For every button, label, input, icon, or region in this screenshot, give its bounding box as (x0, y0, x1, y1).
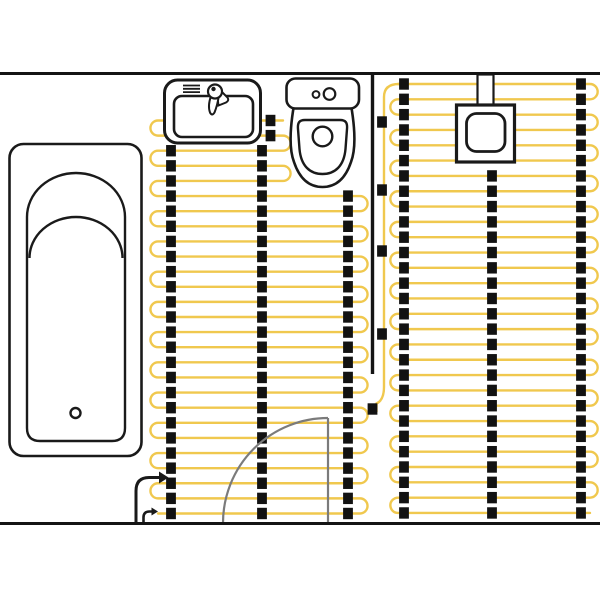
right-heating-mat-fixing-strip-segment (399, 232, 409, 243)
left-heating-mat-fixing-strip-segment (343, 462, 353, 473)
left-heating-mat-fixing-strip-segment (166, 236, 176, 247)
left-heating-mat-fixing-strip-segment (257, 266, 267, 277)
left-heating-mat-fixing-strip-segment (166, 342, 176, 353)
left-heating-mat-fixing-strip-segment (166, 447, 176, 458)
left-heating-mat-fixing-strip-segment (166, 160, 176, 171)
right-heating-mat-fixing-strip-segment (576, 339, 586, 350)
right-heating-mat-fixing-strip-segment (399, 446, 409, 457)
right-heating-mat-fixing-strip-segment (487, 216, 497, 227)
right-heating-mat-fixing-strip-segment (576, 431, 586, 442)
left-heating-mat-fixing-strip-segment (257, 387, 267, 398)
right-heating-mat-fixing-strip-segment (399, 308, 409, 319)
right-heating-mat-fixing-strip-segment (487, 385, 497, 396)
left-heating-mat-fixing-strip-segment (343, 205, 353, 216)
thermostat-stem (478, 75, 494, 107)
right-heating-mat-fixing-strip-segment (399, 109, 409, 120)
left-heating-mat-fixing-strip-segment (166, 462, 176, 473)
left-heating-mat-fixing-strip-segment (166, 266, 176, 277)
right-heating-mat-fixing-strip-segment (576, 262, 586, 273)
right-heating-mat-fixing-strip-segment (576, 216, 586, 227)
left-heating-mat-fixing-strip-segment (343, 311, 353, 322)
right-heating-mat-fixing-strip-segment (399, 201, 409, 212)
left-heating-mat-fixing-strip-segment (166, 296, 176, 307)
left-heating-mat-fixing-strip-segment (343, 402, 353, 413)
left-heating-mat-fixing-strip-segment (257, 145, 267, 156)
right-heating-mat-fixing-strip-segment (399, 262, 409, 273)
right-heating-mat-fixing-strip-segment (487, 293, 497, 304)
right-heating-mat-fixing-strip-segment (576, 109, 586, 120)
right-heating-mat-fixing-strip-segment (399, 492, 409, 503)
right-heating-mat-fixing-strip-segment (399, 155, 409, 166)
left-heating-mat-fixing-strip-segment (343, 432, 353, 443)
left-heating-mat-fixing-strip-segment (257, 205, 267, 216)
feed-line-clip (377, 116, 387, 127)
left-heating-mat-fixing-strip-segment (343, 478, 353, 489)
left-heating-mat-fixing-strip-segment (166, 478, 176, 489)
left-heating-mat-fixing-strip-segment (343, 326, 353, 337)
right-heating-mat-fixing-strip-segment (576, 140, 586, 151)
right-heating-mat-fixing-strip-segment (399, 277, 409, 288)
right-heating-mat-fixing-strip-segment (576, 247, 586, 258)
left-heating-mat-fixing-strip-segment (343, 190, 353, 201)
right-heating-mat-fixing-strip-segment (487, 431, 497, 442)
left-heating-mat-fixing-strip-segment (257, 342, 267, 353)
faucet-dot (211, 87, 215, 91)
left-heating-mat-fixing-strip-segment (257, 493, 267, 504)
left-heating-mat-fixing-strip-segment (166, 205, 176, 216)
left-heating-mat-fixing-strip-segment (266, 130, 276, 141)
left-heating-mat-fixing-strip-segment (343, 236, 353, 247)
left-heating-mat-fixing-strip-segment (166, 190, 176, 201)
toilet-button-small (313, 91, 320, 98)
right-heating-mat-fixing-strip-segment (399, 247, 409, 258)
right-heating-mat-fixing-strip-segment (487, 277, 497, 288)
right-heating-mat-fixing-strip-segment (576, 201, 586, 212)
left-heating-mat-fixing-strip-segment (257, 478, 267, 489)
right-heating-mat-fixing-strip-segment (487, 354, 497, 365)
left-heating-mat-fixing-strip-segment (343, 447, 353, 458)
right-heating-mat-fixing-strip-segment (576, 400, 586, 411)
right-heating-mat-fixing-strip-segment (399, 415, 409, 426)
left-heating-mat-fixing-strip-segment (166, 508, 176, 519)
left-heating-mat-fixing-strip-segment (257, 326, 267, 337)
right-heating-mat-fixing-strip-segment (487, 262, 497, 273)
right-heating-mat-fixing-strip-segment (576, 477, 586, 488)
right-heating-mat-fixing-strip-segment (576, 354, 586, 365)
right-heating-mat-fixing-strip-segment (487, 247, 497, 258)
right-heating-mat-fixing-strip-segment (399, 323, 409, 334)
faucet-head (208, 85, 222, 99)
left-heating-mat-fixing-strip-segment (257, 296, 267, 307)
left-heating-mat-fixing-strip-segment (257, 311, 267, 322)
left-heating-mat-fixing-strip-segment (343, 357, 353, 368)
left-heating-mat-fixing-strip-segment (343, 296, 353, 307)
right-heating-mat-fixing-strip-segment (576, 186, 586, 197)
right-heating-mat-fixing-strip-segment (399, 431, 409, 442)
right-heating-mat-fixing-strip-segment (487, 507, 497, 518)
feed-line-clip (377, 245, 387, 256)
feed-line-clip (377, 184, 387, 195)
right-heating-mat-fixing-strip-segment (487, 232, 497, 243)
right-heating-mat-fixing-strip-segment (576, 492, 586, 503)
left-heating-mat-fixing-strip-segment (166, 402, 176, 413)
right-heating-mat-fixing-strip-segment (487, 446, 497, 457)
left-heating-mat-fixing-strip-segment (166, 326, 176, 337)
left-heating-mat-fixing-strip-segment (257, 508, 267, 519)
right-heating-mat-fixing-strip-segment (399, 293, 409, 304)
left-heating-mat-fixing-strip-segment (166, 175, 176, 186)
right-heating-mat-fixing-strip-segment (399, 140, 409, 151)
left-heating-mat-fixing-strip-segment (166, 417, 176, 428)
left-heating-mat-fixing-strip-segment (343, 221, 353, 232)
right-heating-mat-fixing-strip-segment (576, 323, 586, 334)
right-heating-mat-fixing-strip-segment (576, 308, 586, 319)
feed-line-clip (377, 328, 387, 339)
right-heating-mat-fixing-strip-segment (487, 400, 497, 411)
right-heating-mat-fixing-strip-segment (487, 308, 497, 319)
left-heating-mat-fixing-strip-segment (257, 175, 267, 186)
left-heating-mat-fixing-strip-segment (257, 160, 267, 171)
left-heating-mat-fixing-strip-segment (257, 221, 267, 232)
right-heating-mat-fixing-strip-segment (487, 492, 497, 503)
right-heating-mat-fixing-strip-segment (487, 170, 497, 181)
left-heating-mat-fixing-strip-segment (257, 236, 267, 247)
right-heating-mat-fixing-strip-segment (399, 78, 409, 89)
right-heating-mat-fixing-strip-segment (576, 385, 586, 396)
left-heating-mat-fixing-strip-segment (166, 387, 176, 398)
bathtub-basin (27, 173, 125, 441)
right-heating-mat-fixing-strip-segment (487, 369, 497, 380)
bathroom-heating-plan (0, 0, 600, 600)
feed-line-clip (368, 403, 378, 414)
left-heating-mat-fixing-strip-segment (166, 357, 176, 368)
right-heating-mat-fixing-strip-segment (487, 477, 497, 488)
right-heating-mat-fixing-strip-segment (576, 369, 586, 380)
left-heating-mat-fixing-strip-segment (343, 251, 353, 262)
right-heating-mat-fixing-strip-segment (487, 201, 497, 212)
left-heating-mat-fixing-strip-segment (257, 447, 267, 458)
left-heating-mat-fixing-strip-segment (257, 357, 267, 368)
right-heating-mat-fixing-strip-segment (576, 507, 586, 518)
left-heating-mat-fixing-strip-segment (343, 508, 353, 519)
left-heating-mat-fixing-strip-segment (257, 417, 267, 428)
right-heating-mat-fixing-strip-segment (399, 354, 409, 365)
right-heating-mat-fixing-strip-segment (576, 170, 586, 181)
left-heating-mat-fixing-strip-segment (257, 251, 267, 262)
right-heating-mat-fixing-strip-segment (399, 339, 409, 350)
right-heating-mat-fixing-strip-segment (399, 477, 409, 488)
right-heating-mat-fixing-strip-segment (399, 170, 409, 181)
toilet-button-large (324, 88, 336, 100)
right-heating-mat-fixing-strip-segment (487, 461, 497, 472)
left-heating-mat-fixing-strip-segment (257, 462, 267, 473)
right-heating-mat-fixing-strip-segment (399, 507, 409, 518)
left-heating-mat-fixing-strip-segment (343, 342, 353, 353)
right-heating-mat-fixing-strip-segment (399, 186, 409, 197)
left-heating-mat-fixing-strip-segment (166, 145, 176, 156)
left-heating-mat-fixing-strip-segment (257, 402, 267, 413)
left-heating-mat-fixing-strip-segment (166, 311, 176, 322)
right-heating-mat-fixing-strip-segment (487, 186, 497, 197)
right-heating-mat-fixing-strip-segment (576, 94, 586, 105)
right-heating-mat-fixing-strip-segment (399, 216, 409, 227)
right-heating-mat-fixing-strip-segment (576, 155, 586, 166)
left-heating-mat-fixing-strip-segment (166, 432, 176, 443)
left-heating-mat-fixing-strip-segment (166, 221, 176, 232)
right-heating-mat-fixing-strip-segment (487, 415, 497, 426)
bathtub-drain (71, 408, 81, 418)
left-heating-mat-fixing-strip-segment (343, 372, 353, 383)
right-heating-mat-fixing-strip-segment (399, 124, 409, 135)
right-heating-mat-fixing-strip-segment (399, 369, 409, 380)
left-heating-mat-fixing-strip-segment (166, 372, 176, 383)
right-heating-mat-fixing-strip-segment (576, 232, 586, 243)
left-heating-mat-fixing-strip-segment (166, 251, 176, 262)
thermostat-dial (467, 114, 506, 152)
floor-plan-canvas (0, 0, 600, 600)
left-heating-mat-fixing-strip-segment (257, 190, 267, 201)
right-heating-mat-fixing-strip-segment (576, 277, 586, 288)
left-heating-mat-fixing-strip-segment (257, 281, 267, 292)
left-heating-mat-fixing-strip-segment (266, 115, 276, 126)
right-heating-mat-fixing-strip-segment (399, 94, 409, 105)
right-heating-mat-fixing-strip-segment (399, 461, 409, 472)
left-heating-mat-fixing-strip-segment (343, 281, 353, 292)
right-heating-mat-fixing-strip-segment (399, 400, 409, 411)
right-heating-mat-fixing-strip-segment (576, 124, 586, 135)
left-heating-mat-fixing-strip-segment (343, 417, 353, 428)
left-heating-mat-fixing-strip-segment (166, 493, 176, 504)
right-heating-mat-fixing-strip-segment (576, 415, 586, 426)
left-heating-mat-fixing-strip-segment (343, 266, 353, 277)
right-heating-mat-fixing-strip-segment (576, 293, 586, 304)
right-heating-mat-fixing-strip-segment (487, 323, 497, 334)
right-heating-mat-fixing-strip-segment (399, 385, 409, 396)
toilet-flush-hole (313, 127, 333, 147)
left-heating-mat-fixing-strip-segment (343, 493, 353, 504)
left-heating-mat-fixing-strip-segment (343, 387, 353, 398)
right-heating-mat-fixing-strip-segment (576, 461, 586, 472)
left-heating-mat-fixing-strip-segment (257, 372, 267, 383)
right-heating-mat-fixing-strip-segment (576, 78, 586, 89)
right-heating-mat-fixing-strip-segment (487, 339, 497, 350)
left-heating-mat-fixing-strip-segment (166, 281, 176, 292)
right-heating-mat-fixing-strip-segment (576, 446, 586, 457)
